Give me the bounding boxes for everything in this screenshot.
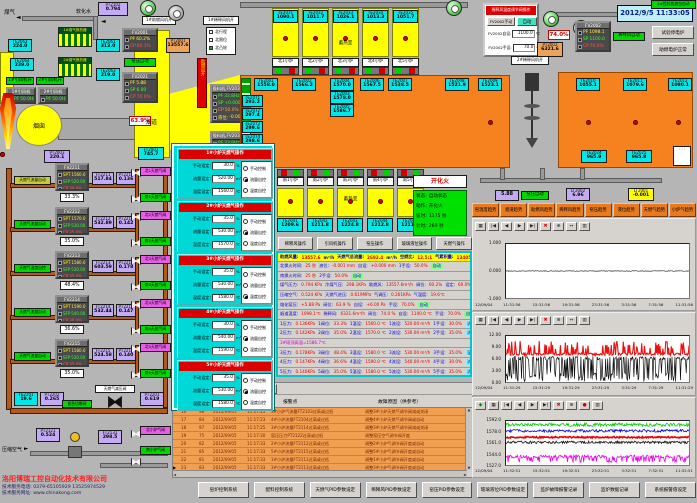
control-mode-radios: 手动控制 流量自控 温度自控 (241, 267, 272, 304)
fv2021-controller[interactable]: FV2021 PF5.88 SP6.00 CP70.0% (122, 72, 158, 103)
alarm-dot-icon (313, 36, 318, 41)
gas-flow-controller[interactable]: FV2212 SPT1570.0 SFP530.00 CP35.0% (55, 207, 89, 235)
ft2003-indicator: FT2003745.7 (138, 147, 164, 160)
flow-setpoint-input[interactable]: 520.00 (212, 175, 235, 183)
furnace-gas-section: 2#小炉天燃气操作 手动设定: 35.0 % 流量设定: 530.00 m³/h… (177, 201, 273, 252)
control-mode-radios: 手动控制 流量自控 温度自控 (241, 320, 272, 357)
gas-flow-controller[interactable]: FV2215 SPT1580.0 SFP530.00 CP35.0% (55, 339, 89, 367)
air-flow-indicator: FT2131298.5 (98, 430, 122, 444)
trend-button-row: 窑温度趋势烟道趋势助燃风趋势稀释风趋势窑压趋势液位趋势天燃气趋势小炉气趋势 (472, 203, 696, 217)
gas-flow-indicator: FT2211517.84 (92, 172, 114, 185)
led-icon (58, 312, 62, 316)
manual-setpoint-input[interactable]: 35.0 (212, 215, 235, 223)
alarm-vscrollbar[interactable]: ▲▼ (465, 408, 472, 470)
trend-button[interactable]: 烟道趋势 (500, 203, 527, 217)
section-title: 2#小炉天燃气操作 (179, 203, 271, 212)
fv2001-controller[interactable]: FV2001 PF60.2% CP60.1% (122, 28, 158, 52)
nav-button[interactable]: 监炉数据记录 (589, 482, 640, 498)
led-icon (58, 268, 62, 272)
gas-flow-indicator: FT2212532.89 (92, 216, 114, 229)
control-mode-radios: 手动控制 流量自控 温度自控 (241, 161, 272, 198)
north-regenerator-column: TE20311090.1 北1小炉 (272, 8, 299, 75)
process-data-row: 烟道温度:1098.1℃稀释风:6321.6m³/h阀位:74.0 %自设:11… (278, 310, 470, 320)
trend-plot (505, 420, 690, 466)
gas-flow-indicator: FT2214532.44 (92, 304, 114, 317)
furnace-gas-section: 1#小炉天燃气操作 手动设定: 30.0 % 流量设定: 520.00 m³/h… (177, 148, 273, 199)
gas-supply-pipe (10, 408, 168, 414)
alarm-row[interactable]: 2185 2012/09/0511:17:335#小炉流量FT2115过高或过低… (173, 448, 467, 456)
gas-flow-indicator: FT2215524.58 (92, 348, 114, 361)
outlet-pipe (480, 178, 662, 183)
gas-temp-indicator: TE220119.6 (14, 392, 38, 406)
fan-icon (140, 0, 156, 16)
mode-radio[interactable]: 温度自控 (243, 344, 270, 355)
mode-radio[interactable]: 温度自控 (243, 397, 270, 408)
chart-toolbar-icon[interactable]: ● (579, 401, 590, 410)
y-tick-label: 6.00 (492, 356, 501, 361)
mode-radio[interactable]: 手动控制 (243, 269, 270, 280)
chart-toolbar-icon[interactable]: |◀ (501, 401, 512, 410)
chart-toolbar-icon[interactable]: ▥ (579, 316, 590, 325)
led-icon (213, 95, 217, 99)
y-tick-label: 1578.0 (486, 429, 501, 434)
port-status-indicator (362, 67, 389, 75)
y-tick-label: 9.00 (492, 344, 501, 349)
section-title: 3#小炉天燃气操作 (179, 256, 271, 265)
process-data-row: 3压力:0.178KPa3阀位:48.4%3温设:1580.0 ℃3流设:530… (278, 348, 470, 358)
flow-arrow-icon: ◄ (101, 18, 106, 25)
dilution-fan-running-label: 1#稀释风机开 (203, 16, 239, 25)
port-label: 南1小炉 (277, 177, 304, 186)
alarm-dot-icon (0, 152, 5, 157)
chart-toolbar-icon[interactable]: ↔ (566, 222, 577, 231)
led-icon (58, 180, 62, 184)
nav-button[interactable]: 窑压PID参数设定 (422, 482, 473, 498)
chart-toolbar-icon[interactable]: ▥ (579, 222, 590, 231)
limit-checkbox-icon (209, 46, 213, 50)
trend-button[interactable]: 窑温度趋势 (472, 203, 499, 217)
radio-icon (243, 389, 248, 394)
temperature-indicator: TE2063219.0 (96, 68, 120, 81)
radio-icon (243, 177, 248, 182)
furnace-gas-section: 5#小炉天燃气操作 手动设定: 35.0 % 流量设定: 530.00 m³/h… (177, 360, 273, 411)
test-power-off-button[interactable]: 试验停电炉 (652, 26, 694, 39)
chart-toolbar-icon[interactable]: ✖ (540, 222, 551, 231)
x-tick-label: 11:32:51 (676, 468, 693, 473)
south-regenerator-column: 南4小炉 TE20441212.8 (367, 169, 394, 232)
pressure-value-box: 5.88 (495, 190, 519, 201)
chart-toolbar-icon[interactable]: ▶ (514, 316, 525, 325)
air-valve-icon[interactable] (70, 432, 80, 442)
valve-position-value: 36.6% (60, 325, 84, 334)
alarm-dot-icon (488, 120, 493, 125)
chart-toolbar-icon[interactable]: ▶ (527, 401, 538, 410)
regenerator-temp-indicator: TE20411209.6 (277, 218, 303, 232)
radio-icon (243, 283, 248, 288)
y-tick-label: 1.000 (489, 240, 501, 245)
chart-toolbar-icon[interactable]: ✖ (553, 401, 564, 410)
nav-button[interactable]: 玻璃液位PID参数设定 (477, 482, 528, 498)
north-regenerator-column: TE20321011.7 北2小炉 (302, 8, 329, 75)
regenerator-temp-indicator: TE20421211.8 (307, 218, 333, 232)
gas-inlet-label: 煤气 (4, 8, 15, 16)
south-regenerator-column: 南1小炉 TE20411209.6 (277, 169, 304, 232)
manual-setpoint-input[interactable]: 35.0 (212, 374, 235, 382)
gas-auto-mode-label: 天燃气流量自动 (14, 308, 51, 317)
exchanger-tubes-icon (59, 34, 91, 46)
x-axis-labels: 12/09/04 11:32:5115:32:5119:32:5123:32:5… (475, 468, 693, 473)
furnace-gas-section: 3#小炉天燃气操作 手动设定: 35.0 % 流量设定: 530.00 m³/h… (177, 254, 273, 305)
mode-radio[interactable]: 流量自控 (243, 280, 270, 291)
trend-chart-panel-pressure: ▦|◀◀▶▶|✖⊕↔▥ 1.0000.000-1.000 12/09/04 11… (472, 218, 696, 311)
green-led-icon (384, 170, 390, 176)
lt2002-indicator: LT20026.96 (566, 188, 590, 201)
y-tick-label: 1592.0 (486, 417, 501, 422)
mode-radio[interactable]: 流量自控 (243, 174, 270, 185)
operation-button[interactable]: 窑压操作 (357, 237, 393, 250)
flow-setpoint-input[interactable]: 530.00 (212, 387, 235, 395)
auto-mode-button[interactable]: 自动 (517, 17, 537, 26)
crown-temp-indicator: TE20021566.2 (292, 78, 316, 91)
regenerator-temp-indicator: TE20441212.8 (367, 218, 393, 232)
y-tick-label: 0.000 (489, 268, 501, 273)
mode-radio[interactable]: 温度自控 (243, 238, 270, 249)
manual-setpoint-input[interactable]: 30.0 (212, 162, 235, 170)
alarm-dot-icon (676, 120, 681, 125)
red-led-icon (371, 170, 377, 176)
port-label: 南3小炉 (337, 177, 364, 186)
chart-toolbar-icon[interactable]: ◆ (475, 401, 486, 410)
port-status-indicator (302, 67, 329, 75)
process-data-row: 3#碹顶高温=1586.7℃ (278, 339, 470, 349)
north-air-valve-label: 北小炉气阀 (140, 426, 171, 435)
gas-flow-controller[interactable]: FV2214 SPT1590.0 SFP540.00 CP30.0% (55, 295, 89, 323)
alarm-row[interactable]: 2082 2012/09/0511:17:332#小炉流量FT2112过高或过低… (173, 440, 467, 448)
chart-toolbar-icon[interactable]: ◀ (501, 222, 512, 231)
alarm-row[interactable]: 2281 2012/09/0511:17:331#小炉流量FT2111过高或过低… (173, 456, 467, 464)
crown-temp-indicator: TE20041570.0 (330, 78, 354, 91)
led-icon (58, 363, 62, 367)
gas-train-row: 天燃气温度自控 FV2213 SPT1580.0 SFP530.00 CP35.… (0, 251, 172, 295)
nav-button[interactable]: 配料控制系统 (254, 482, 305, 498)
port-label: 南2小炉 (307, 177, 334, 186)
gas-auto-mode-label: 天燃气温度自控 (14, 264, 51, 273)
led-icon (213, 116, 217, 120)
company-name: 洛阳博瑞工控自动化技术有限公司 (2, 474, 174, 484)
pt2001-indicator: PT200113557.6 (166, 38, 190, 53)
fire-phase-box: 开化火 (413, 175, 467, 188)
port-status-indicator (277, 169, 304, 177)
led-icon (41, 98, 45, 102)
gas-flow-indicator: FT2213603.59 (92, 260, 114, 273)
chart-toolbar-icon[interactable]: ▶ (514, 222, 525, 231)
red-led-icon (379, 68, 385, 74)
mode-radio[interactable]: 手动控制 (243, 375, 270, 386)
aux-electrode-status-button[interactable]: 助燃电炉正常 (652, 43, 694, 56)
green-led-icon (276, 68, 282, 74)
operation-button[interactable]: 稀释风操作 (278, 237, 314, 250)
chart-toolbar-icon[interactable]: ▶| (540, 401, 551, 410)
company-website: 技术服务网址: www.chinakong.com (2, 490, 174, 496)
trend-button[interactable]: 窑压趋势 (585, 203, 612, 217)
flame-icon (0, 93, 16, 149)
north-gas-valve-label: 北3天燃气阀 (140, 255, 171, 264)
red-led-icon (401, 170, 407, 176)
regenerator-label: 蓄热室 (332, 40, 359, 46)
nav-button[interactable]: 窑炉控制系统 (198, 482, 249, 498)
led-icon (213, 109, 217, 113)
green-led-icon (294, 170, 300, 176)
valve-position-value: 35.0% (60, 237, 84, 246)
process-data-row: 4压力:0.147KPa4阀位:36.6%4温设:1590.0 ℃4流设:540… (278, 358, 470, 368)
air-pressure-indicator: PT21210.524 (36, 428, 60, 442)
manual-setpoint-input[interactable]: 30.0 (212, 321, 235, 329)
gas-flow-controller[interactable]: FV2213 SPT1580.0 SFP530.00 CP35.0% (55, 251, 89, 279)
flow-arrow-icon: ► (24, 446, 28, 452)
mode-radio[interactable]: 流量自控 (243, 386, 270, 397)
temperature-indicator: TE2061313.0 (96, 39, 120, 52)
x-axis-labels: 12/09/04 11:31:5615:31:5619:31:5623:31:5… (475, 302, 693, 307)
x-tick-label: 11:31:29 (503, 385, 520, 390)
nav-button[interactable]: 系统报警值设定 (645, 482, 696, 498)
led-icon (125, 45, 129, 49)
led-icon (125, 38, 129, 42)
working-end-temp-indicator: TE20101055.1 (576, 78, 600, 91)
mode-radio[interactable]: 手动控制 (243, 322, 270, 333)
temp-setpoint-input[interactable]: 1570.0 (212, 241, 235, 249)
led-icon (125, 96, 129, 100)
small-furnace-gas-popup: 1#小炉天燃气操作 手动设定: 30.0 % 流量设定: 520.00 m³/h… (172, 144, 274, 410)
green-led-icon (324, 170, 330, 176)
trend-button[interactable]: 稀释风趋势 (556, 203, 583, 217)
gas-pipe (22, 16, 98, 21)
led-icon (125, 82, 129, 86)
south-gas-valve-label: 南5天燃气阀 (140, 369, 171, 378)
operation-button[interactable]: 天燃气操作 (436, 237, 472, 250)
alarm-dot-icon (373, 36, 378, 41)
red-led-icon (311, 170, 317, 176)
regenerator-temp-indicator: TE20311090.1 (273, 10, 298, 23)
chart-toolbar-icon[interactable]: ◀ (501, 316, 512, 325)
process-data-row: 2压力:0.142KPa2阀位:35.0%2温设:1570.0 ℃2流设:530… (278, 329, 470, 339)
radio-icon (243, 241, 248, 246)
dilution-auto-label: 稀释风自动 (613, 32, 645, 41)
flow-setpoint-input[interactable]: 530.00 (212, 281, 235, 289)
temp-setpoint-input[interactable]: 1590.0 (212, 347, 235, 355)
process-data-row: 北换火时间:25 秒液位:-0.001 mm自设:+0.000 mm1手设:50… (278, 262, 470, 272)
radio-icon (243, 325, 248, 330)
trend-plot (505, 243, 690, 299)
flue-label: 烟道 (146, 118, 157, 126)
heat-exchanger: 1#煤气换热器 (58, 27, 92, 47)
led-icon (58, 224, 62, 228)
x-tick-label: 11:31:56 (503, 302, 520, 307)
control-mode-radios: 手动控制 流量自控 温度自控 (241, 373, 272, 410)
alarm-row[interactable]: 1784 2012/09/0511:17:234#小炉流量FT2104过高或过低… (173, 416, 467, 424)
red-led-icon (409, 68, 415, 74)
mode-radio[interactable]: 流量自控 (243, 333, 270, 344)
trend-button[interactable]: 助燃风趋势 (528, 203, 555, 217)
lt2001-level-indicator: LT2001-0.001 (628, 188, 654, 201)
nav-button[interactable]: 天燃气PID参数设定 (310, 482, 361, 498)
green-led-icon (354, 170, 360, 176)
chart-toolbar-icon[interactable]: |◀ (488, 316, 499, 325)
x-tick-label: 19:32:51 (562, 468, 579, 473)
reversal-limit-box: 北行程 北限位 北凸轮 (206, 27, 236, 55)
alarm-row[interactable]: 1975 2012/09/0511:17:30窑压压力PT2122过高或过低调整… (173, 432, 467, 440)
valve-position-value: 33.3% (60, 193, 84, 202)
operation-button[interactable]: 引风机操作 (317, 237, 353, 250)
dilution-fan2-running-label: 2#稀释风机开 (511, 56, 549, 65)
process-data-row: 熔化窑压:+5.88 Pa阀位:63.9 %自设:+6.00 Pa手设:70.0… (278, 300, 470, 310)
chart-toolbar-icon[interactable]: ⊕ (553, 316, 564, 325)
combustion-air-open-banner: 助燃风开 (197, 58, 207, 108)
chart-toolbar-icon[interactable]: ▶| (527, 222, 538, 231)
manual-mode-button[interactable]: FV2002手动 (487, 17, 515, 26)
led-icon (578, 45, 582, 49)
led-icon (58, 275, 62, 279)
valve-position-value: 48.4% (60, 281, 84, 290)
alarm-reason-column-header: 故障原因（供参考） (378, 398, 421, 405)
fan-icon (543, 11, 559, 27)
regulator-valve-icon[interactable] (108, 396, 122, 408)
id-fan-controller[interactable]: 2#引风机 PF50.0Hz (38, 87, 68, 104)
port-label: 北2小炉 (302, 58, 329, 67)
totals-header-row: 助燃风量:13557.6m³/h天燃气总流量:2693.4m³/h空燃比:12.… (278, 253, 470, 262)
red-led-icon (289, 68, 295, 74)
alarm-dot-icon (283, 36, 288, 41)
radio-icon (243, 166, 248, 171)
crown-temp-indicator: TE20031578.0 (330, 91, 354, 104)
led-icon (58, 173, 62, 177)
trend-plot (505, 335, 690, 383)
north-regenerator-column: TE20341013.3 北4小炉 (362, 8, 389, 75)
stirrer-disc-icon (524, 104, 540, 108)
gas-auto-mode-label: 天燃气流量自动 (14, 176, 51, 185)
manual-setpoint-input[interactable]: 35.0 (212, 268, 235, 276)
chart-toolbar-icon[interactable]: ◀ (514, 401, 525, 410)
gas-pipe (93, 16, 98, 40)
flowmeter-icon (68, 446, 82, 458)
alarm-dot-icon (288, 199, 293, 204)
temp-setpoint-input[interactable]: 1580.0 (212, 294, 235, 302)
flow-setpoint-input[interactable]: 540.00 (212, 334, 235, 342)
chart-toolbar-icon[interactable]: ▶| (527, 316, 538, 325)
mode-radio[interactable]: 手动控制 (243, 163, 270, 174)
radio-icon (243, 272, 248, 277)
alarm-row[interactable]: 1897 2012/09/0511:17:253#小炉流量FT2114过高或过低… (173, 424, 467, 432)
setpoint-input[interactable]: 1100.0 (512, 30, 534, 38)
alarm-hscrollbar[interactable]: ◄► (173, 470, 467, 477)
furnace-gas-section: 4#小炉天燃气操作 手动设定: 30.0 % 流量设定: 540.00 m³/h… (177, 307, 273, 358)
chart-toolbar-icon[interactable]: ↔ (566, 316, 577, 325)
x-tick-label: 7:31:56 (648, 302, 663, 307)
pt2102-indicator: PT21020.794 (98, 2, 128, 16)
x-tick-label: 7:32:51 (648, 468, 663, 473)
radio-icon (243, 400, 248, 405)
chart-toolbar-icon[interactable]: |◀ (488, 222, 499, 231)
process-data-row: 南换火时间:25 秒2手设:50.0%自动 (278, 272, 470, 282)
chart-toolbar-icon[interactable]: ▦ (475, 222, 486, 231)
flow-setpoint-input[interactable]: 530.00 (212, 228, 235, 236)
chart-toolbar-icon[interactable]: ⊕ (553, 222, 564, 231)
led-icon (58, 349, 62, 353)
south-gas-valve-label: 南2天燃气阀 (140, 237, 171, 246)
port-status-indicator (307, 169, 334, 177)
gas-train-row: 天燃气流量自动 FV2214 SPT1590.0 SFP540.00 CP30.… (0, 295, 172, 339)
chart-toolbar-icon[interactable]: ▦ (475, 316, 486, 325)
north-gas-valve-label: 北5天燃气阀 (140, 343, 171, 352)
trend-button[interactable]: 小炉气趋势 (669, 203, 696, 217)
temp-setpoint-input[interactable]: 1580.0 (212, 400, 235, 408)
mode-radio[interactable]: 流量自控 (243, 227, 270, 238)
level-gauge-box: :::: (673, 146, 691, 166)
x-tick-label: 3:31:29 (621, 385, 636, 390)
x-tick-label: 23:31:56 (592, 302, 609, 307)
dilution-valve-position: 74.0% (548, 30, 570, 40)
south-gas-valve-label: 南3天燃气阀 (140, 281, 171, 290)
x-tick-label: 3:32:51 (621, 468, 636, 473)
limit-checkbox-icon (209, 30, 213, 34)
manual-output-input[interactable]: 70.0 (513, 44, 536, 52)
x-tick-label: 15:31:56 (533, 302, 550, 307)
crown-temp-indicator: TE20071538.5 (388, 78, 412, 91)
chart-toolbar-icon[interactable]: ⊕ (566, 401, 577, 410)
stirrer-funnel-icon (526, 138, 538, 148)
port-temp-indicator: TE2072297.4 (242, 108, 263, 120)
process-data-row: 压缩空气:0.524 KPa天燃气进压:0.619MPa气调压:0.261KPa… (278, 291, 470, 301)
green-led-icon (396, 68, 402, 74)
mode-radio[interactable]: 手动控制 (243, 216, 270, 227)
panel-title: 稀释风温度调节阀操作 (486, 6, 536, 15)
section-title: 1#小炉天燃气操作 (179, 150, 271, 159)
fv2002-controller[interactable]: FV2002 PF1098.1 SP1100.0 CP70.0% (575, 21, 611, 52)
bottom-temp-indicator: TE2025965.8 (626, 150, 652, 163)
gas-auto-mode-label: 天燃气流量自动 (14, 220, 51, 229)
bottom-temp-indicator: TE2024965.9 (581, 150, 607, 163)
regenerator-temp-indicator: TE20331026.1 (333, 10, 358, 23)
process-data-row: 1压力:0.136KPa1阀位:33.3%1温设:1560.0 ℃1流设:520… (278, 320, 470, 330)
mode-radio[interactable]: 温度自控 (243, 291, 270, 302)
x-tick-label: 15:32:51 (533, 468, 550, 473)
port-status-indicator (332, 67, 359, 75)
chart-toolbar-icon[interactable]: ▦ (488, 401, 499, 410)
north-gas-valve-label: 北2天燃气阀 (140, 211, 171, 220)
pt2002-indicator: PT20026321.6 (537, 42, 563, 57)
green-led-icon (306, 68, 312, 74)
mode-radio[interactable]: 温度自控 (243, 185, 270, 196)
nav-button[interactable]: 稀释风PID参数设定 (366, 482, 417, 498)
temp-setpoint-input[interactable]: 1560.0 (212, 188, 235, 196)
alarm-dot-icon (403, 36, 408, 41)
gas-flow-controller[interactable]: FV2211 SPT1560.0 SFP520.00 CP30.0% (55, 163, 89, 191)
regenerator-temp-indicator: TE20341013.3 (363, 10, 388, 23)
chart-toolbar-icon[interactable]: ▥ (592, 401, 603, 410)
temperature-indicator: TE2062224.0 (8, 39, 32, 52)
nav-button[interactable]: 监炉故障报警记录 (533, 482, 584, 498)
chart-toolbar-icon[interactable]: ✖ (540, 316, 551, 325)
trend-button[interactable]: 天燃气趋势 (641, 203, 668, 217)
trend-button[interactable]: 液位趋势 (613, 203, 640, 217)
led-icon (58, 217, 62, 221)
x-tick-label: 23:31:29 (592, 385, 609, 390)
north-gas-valve-label: 北1天燃气阀 (140, 167, 171, 176)
south-gas-valve-label: 南4天燃气阀 (140, 325, 171, 334)
chimney: 烟囱 (16, 104, 62, 146)
operation-button[interactable]: 玻璃液位操作 (397, 237, 433, 250)
process-data-row: 5压力:0.140KPa5阀位:35.0%5温设:1580.0 ℃5流设:530… (278, 368, 470, 377)
y-tick-label: 12.00 (489, 332, 501, 337)
